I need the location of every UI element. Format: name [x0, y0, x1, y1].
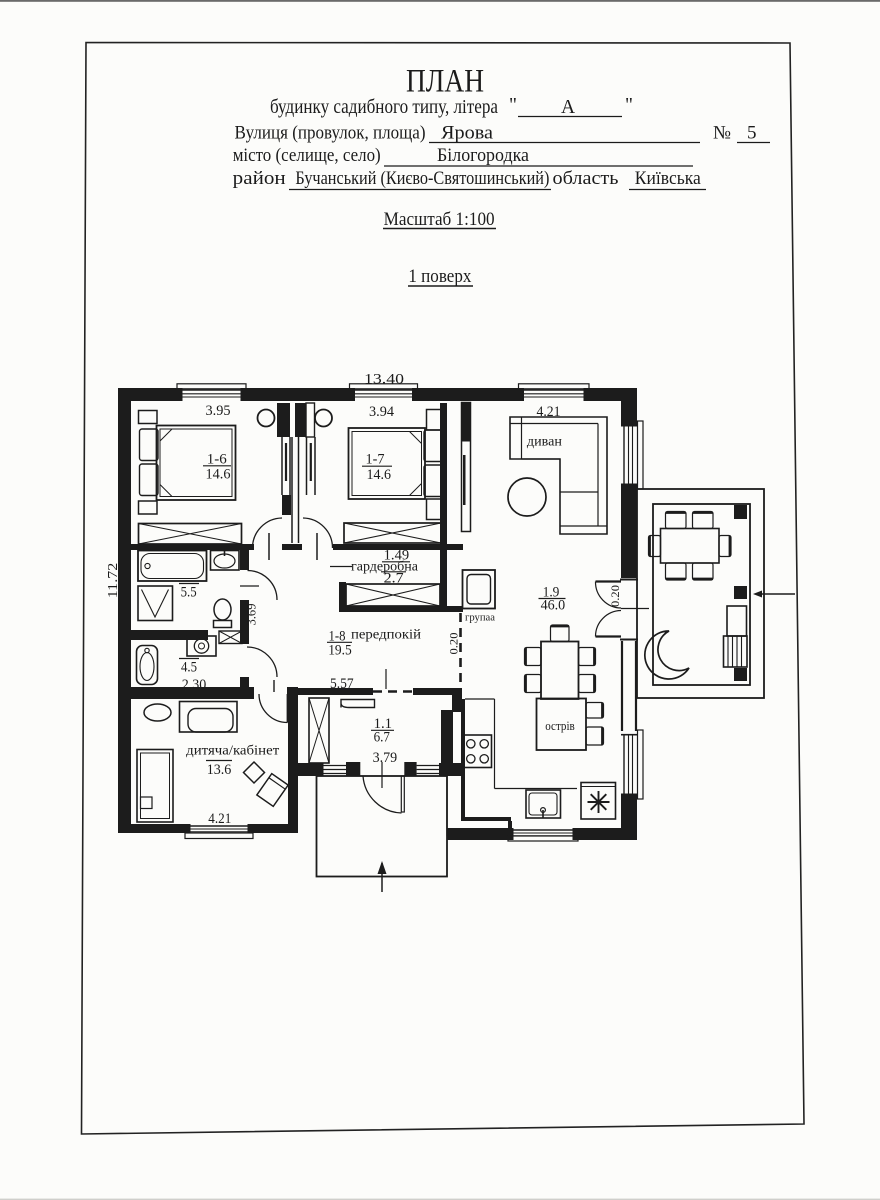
svg-text:5: 5 [747, 123, 757, 144]
svg-text:0.20: 0.20 [608, 585, 622, 607]
svg-text:0.20: 0.20 [447, 633, 461, 655]
svg-text:13.40: 13.40 [364, 372, 404, 388]
svg-text:острів: острів [545, 719, 575, 733]
svg-text:1 поверх: 1 поверх [408, 266, 471, 287]
svg-text:дитяча/кабінет: дитяча/кабінет [186, 743, 279, 758]
svg-text:диван: диван [527, 434, 562, 449]
svg-text:": " [509, 95, 517, 116]
svg-text:19.5: 19.5 [328, 643, 352, 659]
svg-text:14.6: 14.6 [206, 467, 231, 483]
svg-text:11.72: 11.72 [105, 563, 120, 599]
svg-text:3.79: 3.79 [373, 750, 398, 766]
svg-text:будинку садибного типу, літера: будинку садибного типу, літера [270, 97, 498, 118]
svg-text:А: А [561, 97, 575, 118]
svg-text:14.6: 14.6 [366, 467, 391, 483]
svg-text:5.57: 5.57 [330, 676, 354, 692]
svg-text:область: область [553, 168, 619, 189]
svg-text:Бучанський (Києво-Святошинськи: Бучанський (Києво-Святошинський) [295, 168, 549, 189]
svg-text:1-6: 1-6 [207, 452, 227, 468]
svg-text:Вулиця (провулок, площа): Вулиця (провулок, площа) [235, 123, 426, 144]
svg-text:46.0: 46.0 [541, 598, 566, 614]
svg-text:3.69: 3.69 [245, 604, 259, 626]
svg-text:5.5: 5.5 [181, 585, 197, 601]
svg-text:передпокій: передпокій [351, 627, 421, 642]
svg-text:Білогородка: Білогородка [437, 145, 530, 166]
svg-text:Київська: Київська [635, 168, 702, 189]
svg-text:№: № [713, 123, 731, 144]
svg-text:район: район [233, 168, 286, 189]
svg-text:4.21: 4.21 [537, 404, 561, 420]
svg-text:Ярова: Ярова [441, 123, 494, 144]
svg-text:3.94: 3.94 [369, 404, 394, 420]
svg-text:": " [625, 95, 633, 116]
svg-text:13.6: 13.6 [207, 762, 232, 778]
svg-text:ПЛАН: ПЛАН [406, 64, 484, 100]
svg-text:3.95: 3.95 [206, 403, 231, 419]
svg-text:2.30: 2.30 [182, 677, 207, 693]
svg-text:групаа: групаа [465, 613, 495, 624]
svg-text:1-7: 1-7 [366, 452, 385, 468]
svg-text:4.21: 4.21 [208, 811, 231, 827]
svg-text:місто (селище, село): місто (селище, село) [233, 145, 381, 166]
svg-text:Масштаб 1:100: Масштаб 1:100 [384, 209, 495, 230]
svg-text:6.7: 6.7 [374, 730, 391, 746]
svg-text:4.5: 4.5 [181, 660, 197, 676]
